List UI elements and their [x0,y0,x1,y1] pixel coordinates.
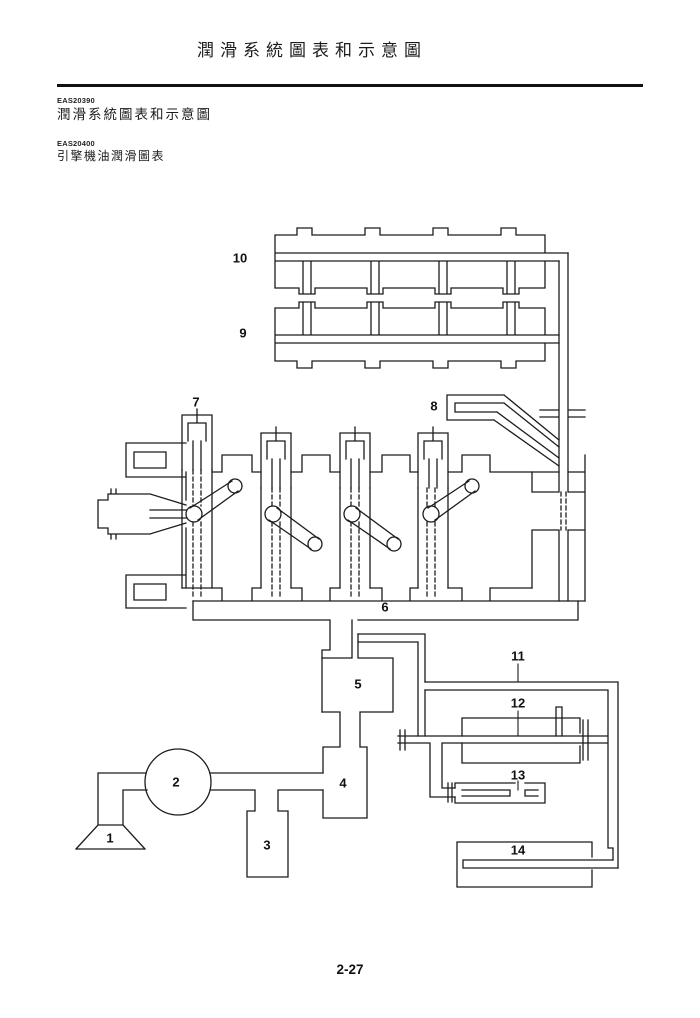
rod-big-end-2 [265,506,281,522]
page-number: 2-27 [0,962,700,977]
part-number-label-11: 11 [511,650,525,663]
lubrication-diagram-svg [0,0,700,1018]
lubrication-diagram: 1234567891011121314 [0,0,700,1018]
part-number-label-12: 12 [511,697,525,710]
rod-big-end-3 [344,506,360,522]
exhaust-camshaft [275,302,559,368]
part-number-label-7: 7 [192,396,199,409]
drive-axle [455,783,545,803]
connecting-rods [190,481,475,549]
delivery-line-and-tee [398,682,618,868]
part-number-label-10: 10 [233,252,247,265]
crank-left-end [98,443,186,608]
intake-camshaft [275,228,568,294]
bottom-shaft-assembly [457,842,618,887]
part-number-label-5: 5 [354,678,361,691]
part-number-label-8: 8 [430,400,437,413]
rod-small-end-2 [308,537,322,551]
rod-small-end-4 [465,479,479,493]
oil-passages-dashed [193,470,566,598]
part-number-label-4: 4 [339,777,346,790]
rod-small-end-3 [387,537,401,551]
part-number-label-3: 3 [263,839,270,852]
rod-small-end-1 [228,479,242,493]
part-number-label-1: 1 [106,832,113,845]
part-number-label-9: 9 [239,327,246,340]
transmission-branch-pipe [358,634,425,736]
crank-right-journal-block [532,455,585,601]
part-number-label-13: 13 [511,769,525,782]
part-number-label-14: 14 [511,844,525,857]
pistons [182,409,448,488]
rod-big-end-4 [423,506,439,522]
oil-cooler-and-filter [322,620,393,818]
cylinder-head-feed-pipe [540,253,585,472]
pump-strainer-valve-piping [76,773,323,877]
part-number-label-6: 6 [381,601,388,614]
rod-big-end-1 [186,506,202,522]
part-number-label-2: 2 [172,776,179,789]
main-axle [462,707,588,763]
